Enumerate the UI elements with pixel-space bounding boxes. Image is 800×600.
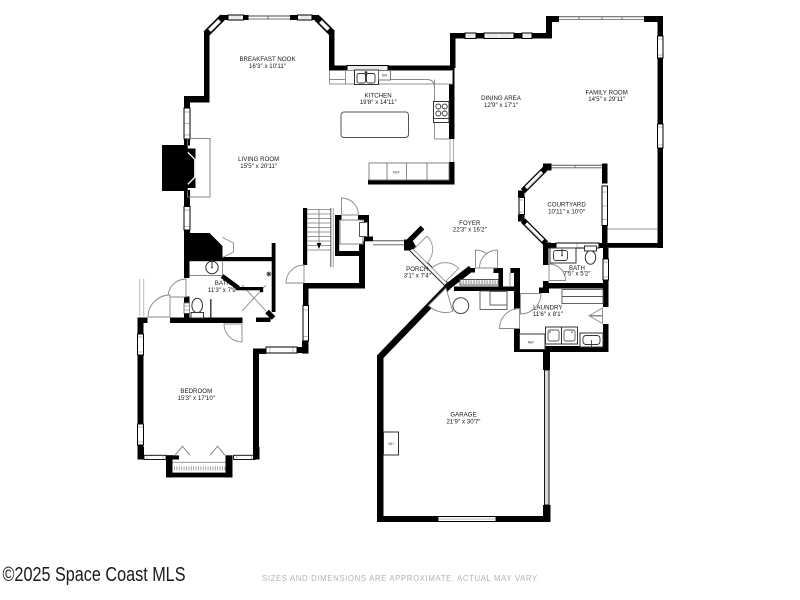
svg-text:DW: DW bbox=[382, 74, 387, 78]
svg-text:3′1″ x 7′4″: 3′1″ x 7′4″ bbox=[404, 272, 432, 279]
svg-text:REF: REF bbox=[393, 171, 399, 175]
svg-text:22′3″ x 16′2″: 22′3″ x 16′2″ bbox=[453, 227, 488, 234]
svg-text:BEDROOM: BEDROOM bbox=[180, 388, 212, 395]
svg-text:11′6″ x 8′1″: 11′6″ x 8′1″ bbox=[533, 311, 564, 318]
svg-text:7′5″ x 5′2″: 7′5″ x 5′2″ bbox=[563, 271, 591, 278]
svg-text:©2025 Space Coast MLS: ©2025 Space Coast MLS bbox=[3, 564, 186, 586]
svg-text:10′11″ x 10′0″: 10′11″ x 10′0″ bbox=[548, 208, 586, 215]
svg-text:21′9″ x 30′7″: 21′9″ x 30′7″ bbox=[446, 418, 481, 425]
svg-text:15′3″ x 17′10″: 15′3″ x 17′10″ bbox=[178, 395, 216, 402]
svg-text:16′3″ x 10′11″: 16′3″ x 10′11″ bbox=[249, 63, 287, 70]
svg-text:11′3″ x 7′9″: 11′3″ x 7′9″ bbox=[208, 287, 239, 294]
svg-text:12′9″ x 17′1″: 12′9″ x 17′1″ bbox=[484, 102, 519, 109]
svg-text:15′5″ x 20′11″: 15′5″ x 20′11″ bbox=[240, 163, 278, 170]
svg-text:WH: WH bbox=[388, 442, 394, 446]
svg-text:14′5″ x 29′11″: 14′5″ x 29′11″ bbox=[588, 96, 626, 103]
svg-text:19′8″ x 14′11″: 19′8″ x 14′11″ bbox=[360, 99, 398, 106]
svg-text:SIZES AND DIMENSIONS ARE APPRO: SIZES AND DIMENSIONS ARE APPROXIMATE, AC… bbox=[262, 574, 539, 583]
svg-text:REF: REF bbox=[528, 341, 534, 345]
